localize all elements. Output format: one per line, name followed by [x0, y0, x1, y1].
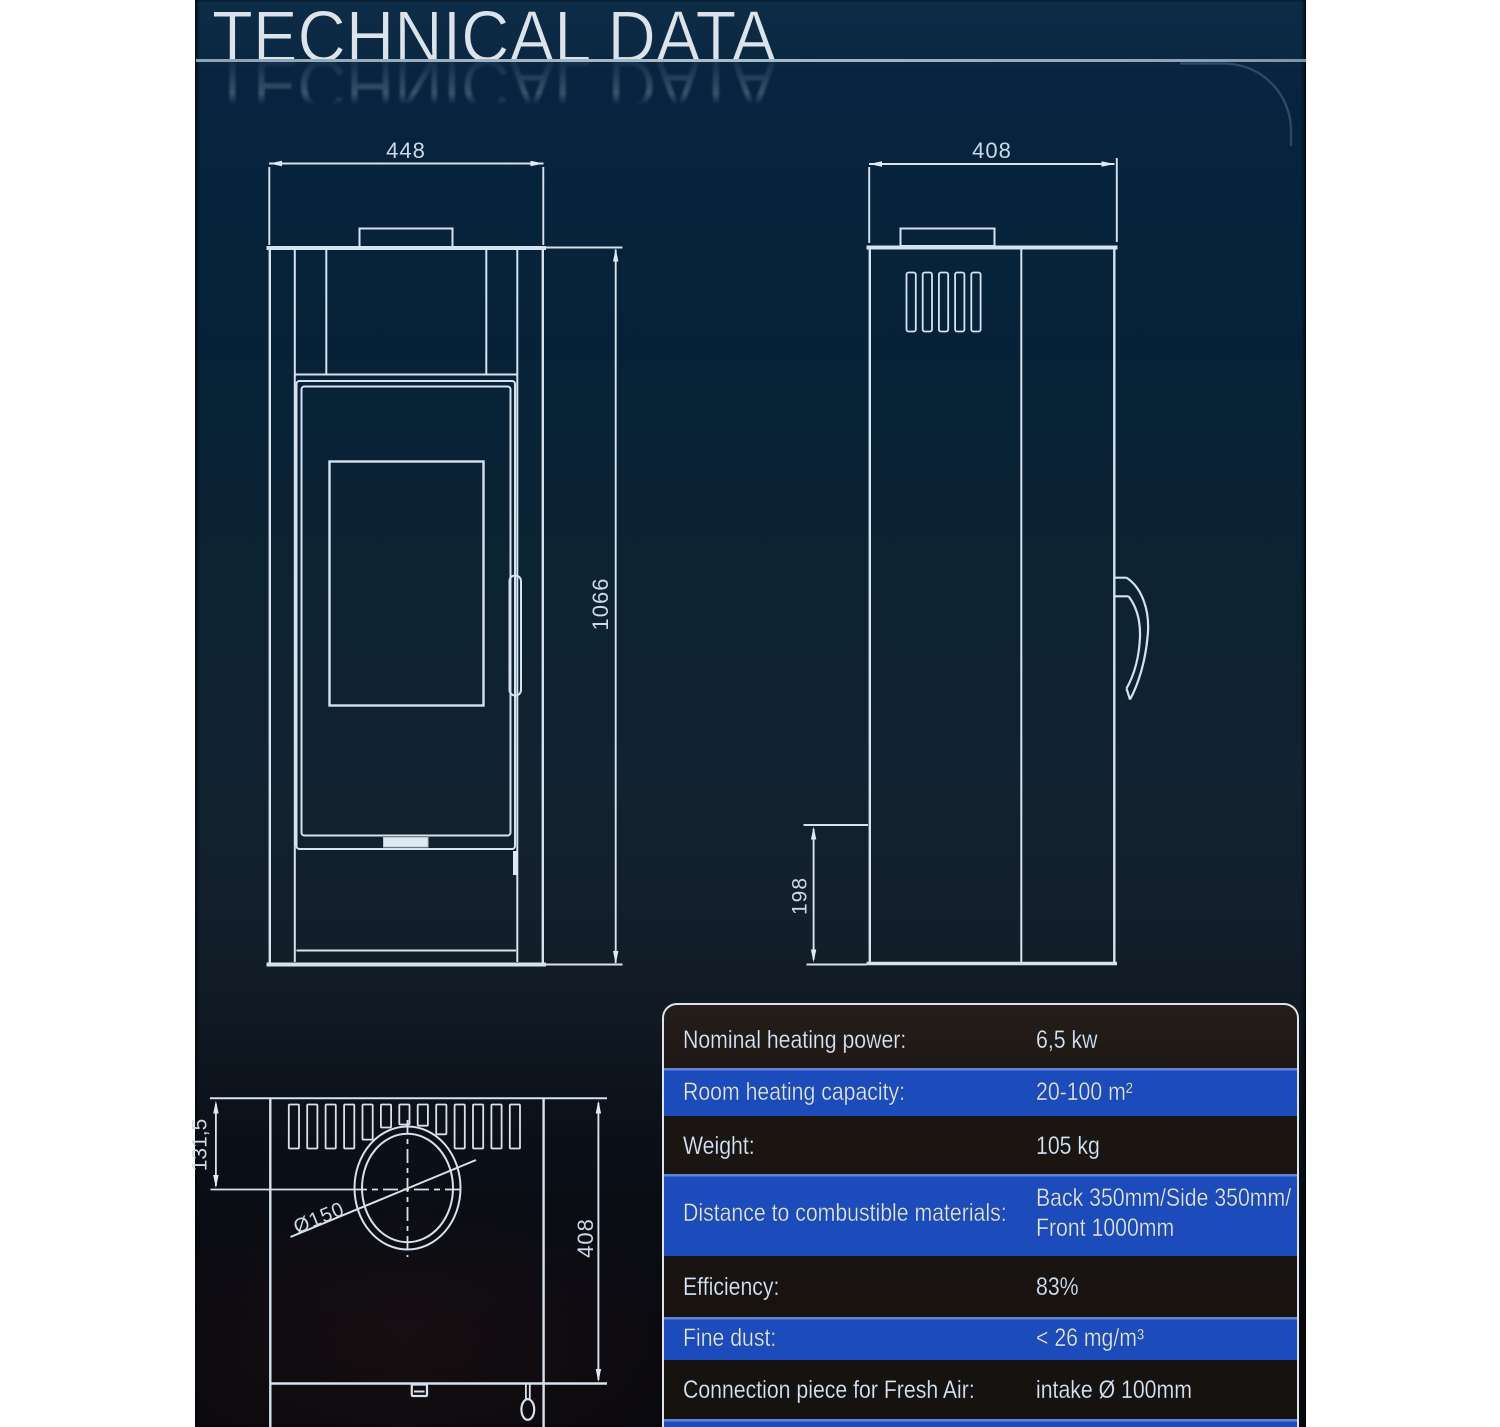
svg-text:131,5: 131,5 [189, 1119, 212, 1172]
svg-text:1066: 1066 [588, 578, 613, 631]
svg-text:408: 408 [972, 138, 1012, 163]
svg-text:198: 198 [789, 877, 812, 915]
svg-text:Ø150: Ø150 [290, 1198, 347, 1239]
svg-text:408: 408 [573, 1218, 598, 1258]
svg-text:448: 448 [386, 138, 426, 163]
